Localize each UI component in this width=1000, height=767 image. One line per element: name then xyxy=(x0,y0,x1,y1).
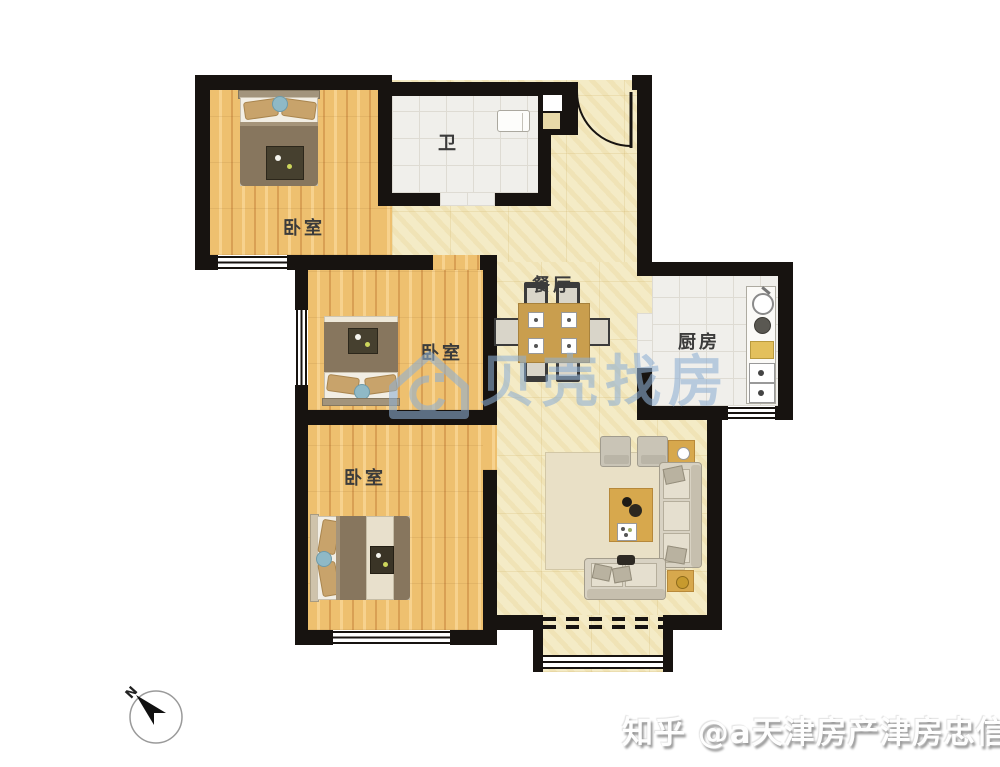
room-label-dining: 餐厅 xyxy=(532,271,574,297)
decor-plate xyxy=(316,551,332,567)
balcony-side-wall xyxy=(663,615,673,672)
wall xyxy=(707,406,722,630)
room-label-bedroom-bottom: 卧室 xyxy=(344,464,386,490)
window xyxy=(296,310,307,385)
stove-control xyxy=(750,341,774,359)
window xyxy=(333,631,450,644)
wall xyxy=(378,193,440,206)
doorway-kitchen xyxy=(637,313,652,368)
throw-pillow xyxy=(665,545,687,564)
window xyxy=(728,407,775,419)
wall xyxy=(287,255,433,270)
room-label-bedroom-mid: 卧室 xyxy=(421,339,463,365)
doorway-bathroom xyxy=(440,193,495,206)
coffee-table xyxy=(609,488,653,542)
doorway-bedroom-top xyxy=(378,205,392,255)
balcony-opening-dashed xyxy=(543,617,663,621)
doorway-bedroom-bottom xyxy=(483,423,497,470)
pot-icon xyxy=(754,317,771,334)
bed-tray xyxy=(370,546,394,574)
floor-plan: 卧室 卫 餐厅 卧室 厨房 卧室 贝壳找房 知乎 @a天津房产津房忠信庄 N xyxy=(0,0,1000,767)
wall xyxy=(637,262,793,276)
wall xyxy=(778,262,793,420)
kitchen-counter xyxy=(746,286,776,404)
ottoman xyxy=(600,436,631,467)
wall xyxy=(775,406,793,420)
entry-door-arc xyxy=(577,92,631,146)
zhihu-watermark: 知乎 @a天津房产津房忠信庄 xyxy=(622,707,982,752)
room-label-bedroom-top: 卧室 xyxy=(283,214,325,240)
wall xyxy=(295,410,497,425)
double-bed xyxy=(310,514,412,602)
shaft-inset-beige xyxy=(543,113,560,129)
washing-machine xyxy=(497,110,530,132)
throw-pillow xyxy=(612,566,632,584)
room-label-bathroom: 卫 xyxy=(438,129,459,155)
balcony-side-wall xyxy=(533,615,543,672)
side-table xyxy=(668,440,695,464)
side-table xyxy=(667,570,694,592)
sofa-small xyxy=(584,558,666,600)
dining-table xyxy=(518,303,590,363)
dining-set xyxy=(494,282,614,384)
room-label-kitchen: 厨房 xyxy=(678,328,720,354)
double-bed xyxy=(322,316,400,406)
wall xyxy=(483,470,497,630)
wall xyxy=(450,630,497,645)
wall xyxy=(295,630,333,645)
entry-door xyxy=(560,70,660,170)
wall xyxy=(195,255,218,270)
balcony-window xyxy=(543,655,663,669)
wall xyxy=(378,82,392,205)
bed-tray xyxy=(348,328,378,354)
sofa-main xyxy=(659,462,702,568)
wall xyxy=(295,255,308,310)
doorway-bedroom-mid xyxy=(433,255,480,270)
wall xyxy=(195,75,210,268)
wall xyxy=(495,193,551,206)
balcony-opening-dashed xyxy=(543,625,663,629)
window xyxy=(218,256,287,269)
dining-chair xyxy=(494,318,520,346)
decor-plate xyxy=(272,96,288,112)
wall xyxy=(195,75,392,90)
compass-icon: N xyxy=(116,674,192,754)
double-bed xyxy=(238,90,320,188)
bed-tray xyxy=(266,146,304,180)
sink-icon xyxy=(752,293,774,315)
wall xyxy=(295,410,308,645)
